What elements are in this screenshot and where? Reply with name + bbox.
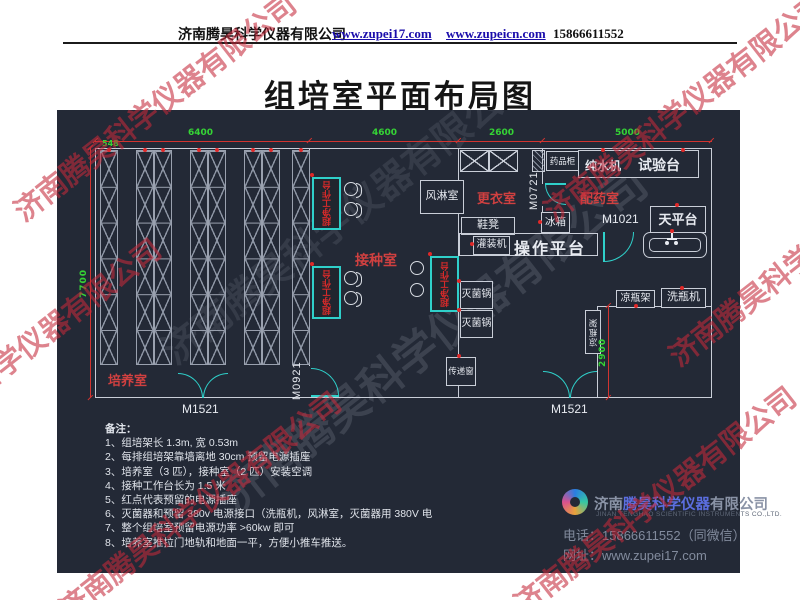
room-label-culture: 培养室	[108, 370, 147, 389]
note-item: 6、灭菌器和预留 380v 电源接口（洗瓶机，风淋室，灭菌器用 380V 电	[105, 507, 432, 521]
locker-cell	[489, 150, 518, 172]
rack-column	[190, 150, 208, 365]
dim-6400: 6400	[188, 128, 213, 138]
sterilizer-box: 灭菌锅	[460, 310, 493, 338]
operation-platform-label: 操作平台	[514, 235, 586, 259]
note-item: 1、组培架长 1.3m, 宽 0.53m	[105, 436, 432, 450]
faucet-icon	[667, 238, 677, 240]
medicine-cabinet	[532, 150, 545, 172]
power-outlet-dot	[143, 148, 147, 152]
rack-column	[154, 150, 172, 365]
power-outlet-dot	[310, 262, 314, 266]
rack-column	[292, 150, 310, 365]
footer-company-en: JINAN TENGHAO SCIENTIFIC INSTRUMENTS CO.…	[596, 511, 782, 518]
power-outlet-dot	[269, 148, 273, 152]
notes-title: 备注：	[105, 422, 432, 436]
power-outlet-dot	[197, 148, 201, 152]
note-item: 7、整个组培室预留电源功率 >60kw 即可	[105, 521, 432, 535]
power-outlet-dot	[681, 148, 685, 152]
power-outlet-dot	[161, 148, 165, 152]
footer-web: 网址：www.zupei17.com	[563, 545, 707, 564]
plan-outer-wall	[95, 148, 712, 398]
door-label-m1521-left: M1521	[182, 402, 219, 416]
header-phone: 15866611552	[553, 26, 624, 42]
dim-5000: 5000	[615, 128, 640, 138]
power-outlet-dot	[470, 242, 474, 246]
bottle-rack-label: 凉瓶架	[589, 318, 598, 347]
test-bench-label: 试验台	[638, 155, 680, 175]
door-leaf	[311, 395, 339, 397]
door-label-m1021: M1021	[602, 212, 639, 226]
dimension-line-top	[95, 141, 712, 142]
rack-column	[100, 150, 118, 365]
note-item: 5、红点代表预留的电源插座	[105, 493, 432, 507]
filling-machine-box: 灌装机	[473, 236, 510, 255]
chair-icon	[410, 261, 424, 275]
power-outlet-dot	[457, 279, 461, 283]
footer-phone-label: 电话：	[563, 528, 602, 543]
room-label-changing: 更衣室	[477, 188, 516, 207]
note-item: 8、培养室推拉门地轨和地面一平，方便小推车推送。	[105, 536, 432, 550]
footer-phone: 电话：15866611552（同微信）	[563, 525, 746, 544]
door-label-m1521-right: M1521	[551, 402, 588, 416]
power-outlet-dot	[680, 286, 684, 290]
room-label-inoculation: 接种室	[355, 250, 397, 270]
balance-table-box: 天平台	[650, 206, 706, 233]
power-outlet-dot	[538, 220, 542, 224]
rack-column	[136, 150, 154, 365]
dim-2900: 2900	[598, 337, 608, 367]
dim-548: 548	[102, 139, 119, 148]
rack-column	[262, 150, 280, 365]
header-link-zupei17[interactable]: www.zupei17.com	[332, 26, 432, 42]
power-outlet-dot	[457, 354, 461, 358]
power-outlet-dot	[299, 148, 303, 152]
dimension-line-right	[608, 306, 609, 398]
medicine-cabinet-label: 药品柜	[546, 151, 579, 171]
power-outlet-dot	[457, 308, 461, 312]
clean-bench: 超净工作台	[430, 256, 459, 312]
rack-column	[244, 150, 262, 365]
pure-water-machine-label: 纯水机	[585, 157, 621, 174]
clean-bench-label: 超净工作台	[320, 270, 333, 315]
door-label-m0721: M0721	[528, 172, 540, 210]
footer-web-url[interactable]: www.zupei17.com	[602, 548, 707, 563]
air-shower-box: 风淋室	[420, 180, 464, 214]
locker-cell	[460, 150, 489, 172]
header-company-name: 济南腾昊科学仪器有限公司	[178, 24, 346, 44]
door-label-m0921: M0921	[291, 362, 303, 400]
bottle-washer-box: 洗瓶机	[661, 288, 706, 308]
notes-block: 备注： 1、组培架长 1.3m, 宽 0.53m 2、每排组培架靠墙离地 30c…	[105, 422, 432, 550]
power-outlet-dot	[670, 229, 674, 233]
header-divider	[63, 42, 737, 44]
note-item: 4、接种工作台长为 1.5 米	[105, 479, 432, 493]
power-outlet-dot	[215, 148, 219, 152]
dim-7700: 7700	[79, 258, 89, 298]
pass-window-box: 传递窗	[446, 357, 476, 386]
footer-web-label: 网址：	[563, 548, 602, 563]
dimension-line-left	[90, 148, 91, 398]
header-link-zupeicn[interactable]: www.zupeicn.com	[446, 26, 546, 42]
fridge-box: 冰箱	[541, 212, 570, 233]
power-outlet-dot	[251, 148, 255, 152]
clean-bench-label: 超净工作台	[320, 181, 333, 226]
dim-4600: 4600	[372, 128, 397, 138]
power-outlet-dot	[428, 252, 432, 256]
room-label-dispensing: 配药室	[580, 188, 619, 207]
company-logo-icon	[562, 489, 588, 515]
power-outlet-dot	[601, 148, 605, 152]
faucet-handle-icon	[674, 241, 678, 245]
power-outlet-dot	[310, 173, 314, 177]
page: 济南腾昊科学仪器有限公司 www.zupei17.com www.zupeicn…	[0, 0, 800, 600]
footer-phone-number: 15866611552（同微信）	[602, 528, 746, 543]
note-item: 3、培养室（3 匹），接种室（2 匹）安装空调	[105, 465, 432, 479]
note-item: 2、每排组培架靠墙离地 30cm 预留电源插座	[105, 450, 432, 464]
rack-column	[208, 150, 226, 365]
power-outlet-dot	[675, 203, 679, 207]
clean-bench: 超净工作台	[312, 266, 341, 319]
power-outlet-dot	[634, 304, 638, 308]
clean-bench: 超净工作台	[312, 177, 341, 230]
chair-icon	[410, 283, 424, 297]
clean-bench-label: 超净工作台	[438, 262, 451, 307]
dim-2600: 2600	[489, 128, 514, 138]
power-outlet-dot	[107, 148, 111, 152]
faucet-handle-icon	[665, 241, 669, 245]
sterilizer-box: 灭菌锅	[460, 281, 493, 309]
